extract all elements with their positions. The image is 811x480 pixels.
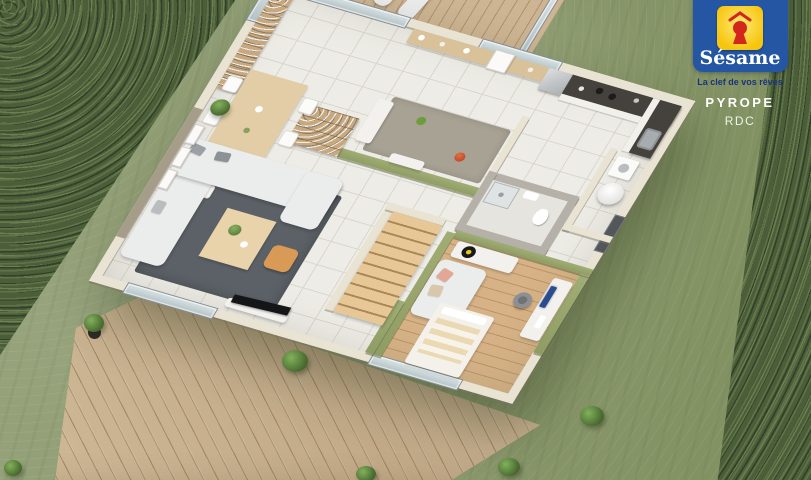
- deck-plant-yucca: [282, 350, 308, 372]
- logo-tagline: La clef de vos rêves: [697, 77, 783, 87]
- deck-plant-small: [356, 466, 376, 480]
- lawn-plant-corner: [4, 460, 22, 476]
- sesame-logo: MAISONS Sésame: [693, 0, 788, 72]
- keyhole-icon: [717, 6, 763, 50]
- floor-label: RDC: [725, 114, 756, 128]
- logo-wordmark: Sésame: [693, 47, 788, 69]
- model-name: PYROPE: [705, 95, 774, 110]
- floorplan-render: MAISONS Sésame La clef de vos rêves PYRO…: [0, 0, 811, 480]
- garden-bush-small: [498, 458, 520, 476]
- potted-plant: [84, 314, 104, 332]
- garden-bush: [580, 406, 604, 426]
- brand-block: MAISONS Sésame La clef de vos rêves PYRO…: [676, 0, 804, 128]
